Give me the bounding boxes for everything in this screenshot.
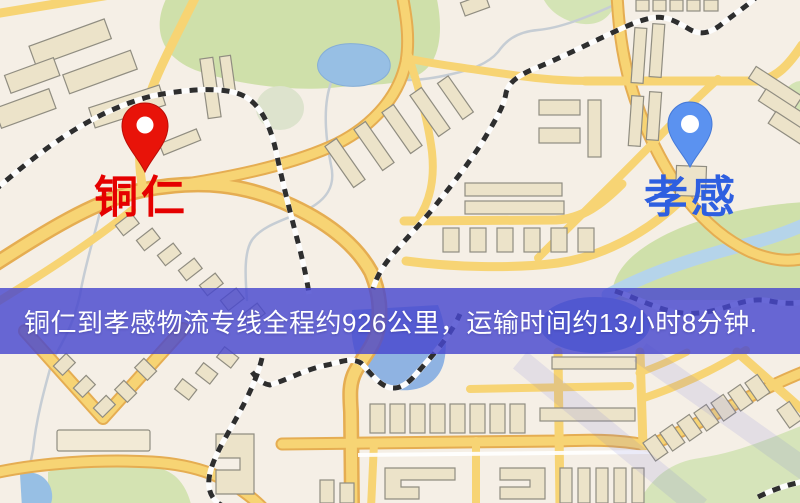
- route-info-banner: 铜仁到孝感物流专线全程约926公里，运输时间约13小时8分钟.: [0, 288, 800, 354]
- map-canvas[interactable]: 铜仁 孝感: [0, 0, 800, 503]
- origin-label: 铜仁: [94, 173, 188, 222]
- destination-label: 孝感: [644, 173, 738, 222]
- route-info-text: 铜仁到孝感物流专线全程约926公里，运输时间约13小时8分钟.: [24, 303, 757, 340]
